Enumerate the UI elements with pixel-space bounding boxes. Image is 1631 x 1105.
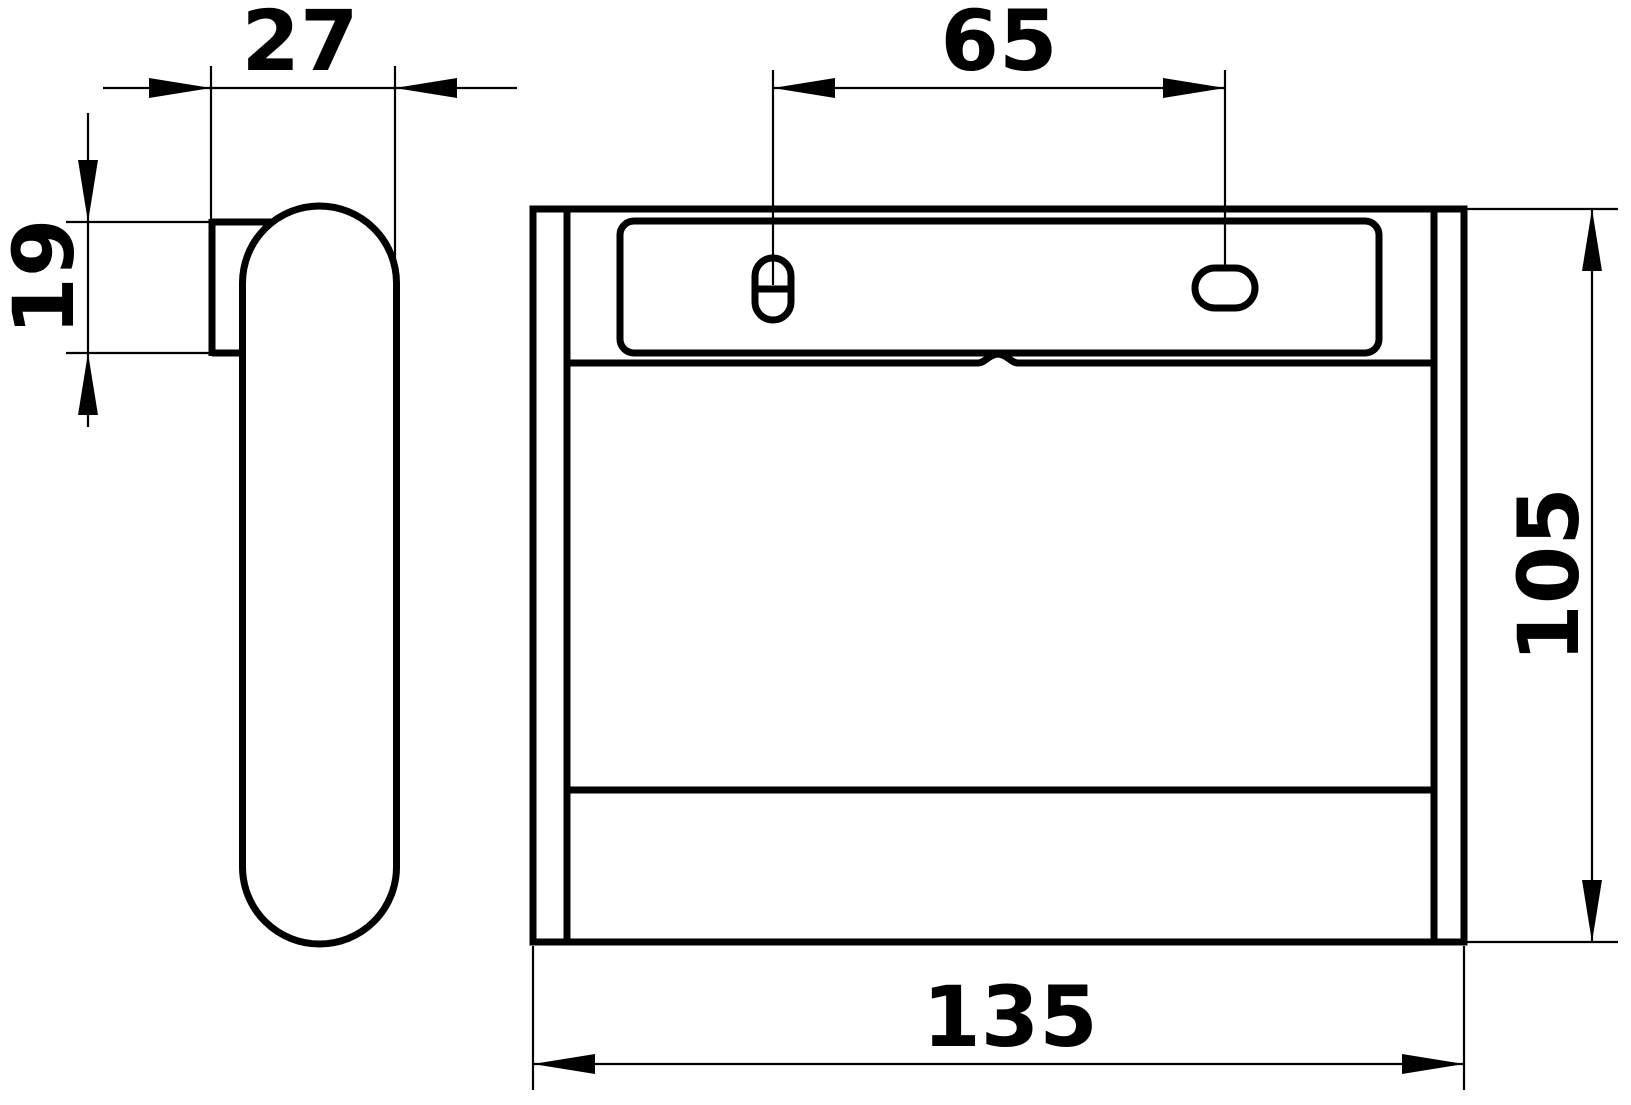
technical-drawing: 27 19 65 105 135	[0, 0, 1631, 1105]
dim-19-label: 19	[0, 219, 93, 336]
dim-65-label: 65	[941, 0, 1058, 90]
dim-27-label: 27	[242, 0, 359, 90]
dim-105-label: 105	[1500, 487, 1598, 662]
dim-135-label: 135	[922, 968, 1097, 1066]
side-capsule-body	[243, 206, 397, 944]
side-view	[212, 206, 397, 944]
technical-drawing-page: 27 19 65 105 135	[0, 0, 1631, 1105]
